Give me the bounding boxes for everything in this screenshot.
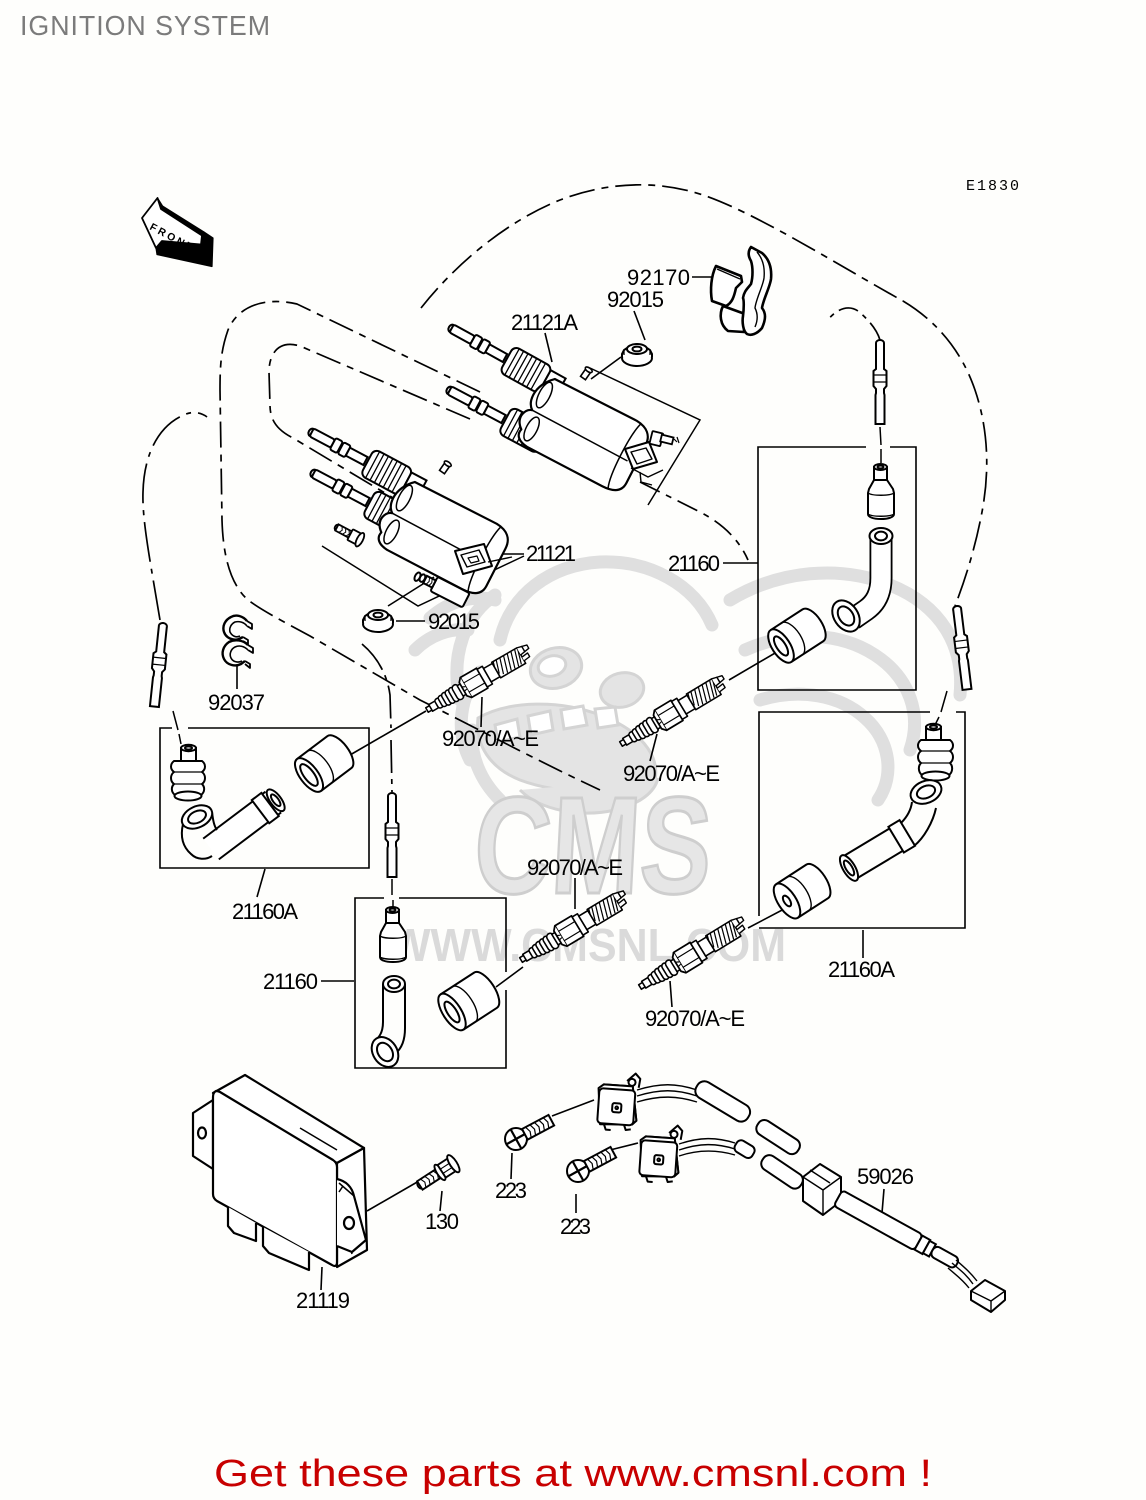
svg-text:21160: 21160 [668,551,720,576]
svg-text:92070/A~E: 92070/A~E [645,1006,745,1031]
svg-text:59026: 59026 [857,1164,914,1189]
svg-text:223: 223 [560,1214,591,1239]
svg-text:92015: 92015 [428,609,480,634]
svg-text:Get these parts at www.cmsnl.c: Get these parts at www.cmsnl.com ! [214,1453,932,1495]
svg-text:130: 130 [425,1209,459,1234]
svg-text:E1830: E1830 [966,178,1021,195]
svg-text:92070/A~E: 92070/A~E [623,761,720,786]
svg-text:92015: 92015 [607,287,664,312]
svg-text:21160A: 21160A [232,899,298,924]
svg-text:92070/A~E: 92070/A~E [527,855,623,880]
svg-text:21119: 21119 [296,1288,350,1313]
svg-text:CMS: CMS [471,769,716,923]
svg-text:21121A: 21121A [511,310,578,335]
svg-text:IGNITION SYSTEM: IGNITION SYSTEM [20,10,271,41]
svg-text:92037: 92037 [208,690,265,715]
svg-text:21121: 21121 [526,541,576,566]
svg-text:223: 223 [495,1178,527,1203]
svg-text:21160A: 21160A [828,957,895,982]
svg-text:21160: 21160 [263,969,318,994]
svg-text:92070/A~E: 92070/A~E [442,726,539,751]
